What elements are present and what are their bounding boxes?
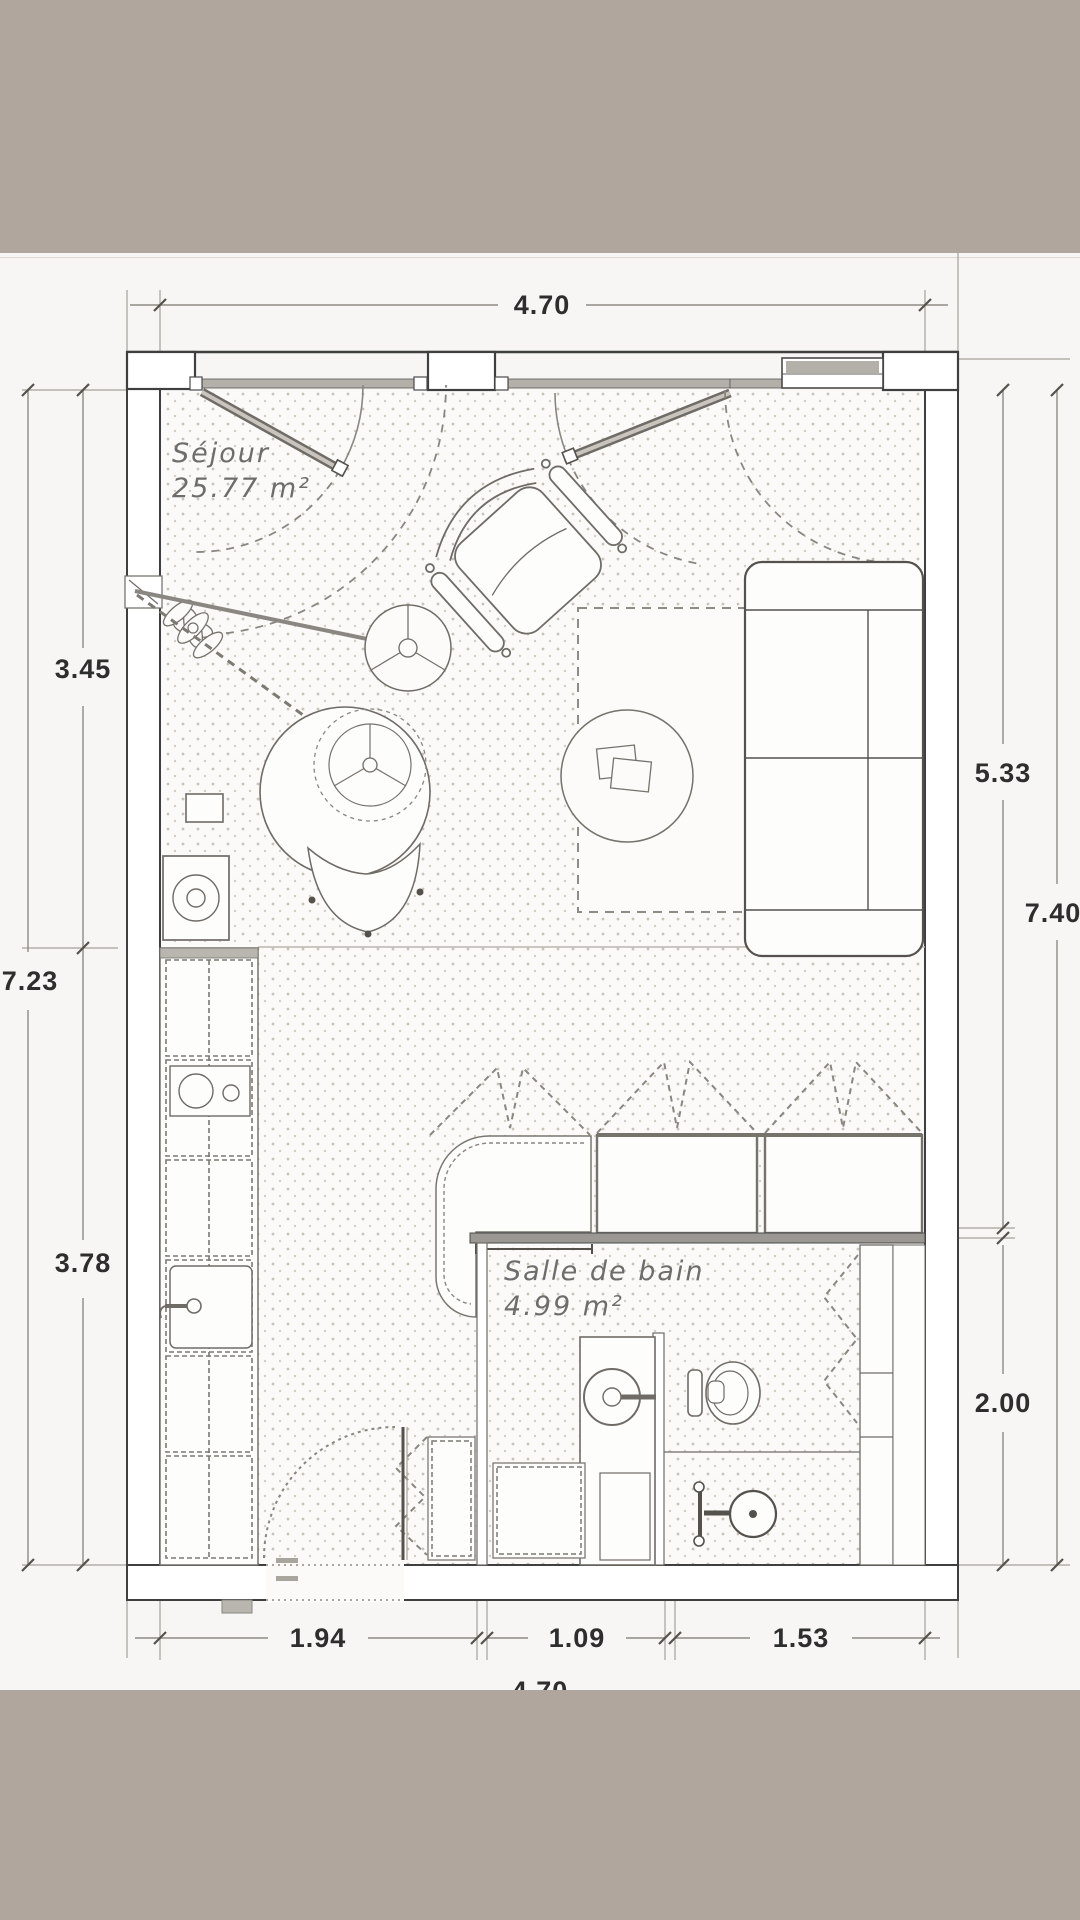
dim-bottom-center: 1.09 bbox=[549, 1623, 606, 1653]
dim-right-total: 7.40 bbox=[1025, 898, 1080, 928]
dim-right-upper: 5.33 bbox=[975, 758, 1032, 788]
room-area-sejour: 25.77 m² bbox=[172, 473, 311, 504]
side-table bbox=[365, 605, 451, 691]
door-mat bbox=[276, 1576, 298, 1581]
floor-plan: Séjour 25.77 m² Salle de bain 4.99 m² 4.… bbox=[0, 0, 1080, 1920]
dim-right-lower: 2.00 bbox=[975, 1388, 1032, 1418]
room-area-salle-de-bain: 4.99 m² bbox=[504, 1291, 624, 1322]
dim-bottom-left: 1.94 bbox=[290, 1623, 347, 1653]
sofa bbox=[745, 562, 923, 956]
dim-bottom-right: 1.53 bbox=[773, 1623, 830, 1653]
bathroom-tall-cabinet bbox=[860, 1245, 925, 1565]
kitchen-counter bbox=[160, 948, 258, 1565]
floor-plan-photo: Séjour 25.77 m² Salle de bain 4.99 m² 4.… bbox=[0, 0, 1080, 1920]
coffee-table bbox=[561, 710, 693, 842]
washing-machine bbox=[163, 856, 229, 940]
window-niche bbox=[782, 358, 883, 388]
dim-left-total: 7.23 bbox=[2, 966, 59, 996]
dim-left-lower: 3.78 bbox=[55, 1248, 112, 1278]
threshold-mat bbox=[222, 1600, 252, 1613]
room-name-sejour: Séjour bbox=[172, 438, 270, 469]
kitchen-sink bbox=[160, 1266, 252, 1348]
photo-bottom-bar bbox=[0, 1690, 1080, 1920]
room-name-salle-de-bain: Salle de bain bbox=[504, 1256, 705, 1287]
door-mat bbox=[276, 1558, 298, 1563]
toilet bbox=[688, 1362, 760, 1424]
cooktop bbox=[170, 1066, 250, 1116]
wall-box bbox=[186, 794, 223, 822]
dim-top-width: 4.70 bbox=[514, 290, 571, 320]
dim-left-upper: 3.45 bbox=[55, 654, 112, 684]
photo-top-bar bbox=[0, 0, 1080, 253]
bathroom-vanity bbox=[580, 1337, 656, 1565]
bathroom-west-wall bbox=[477, 1243, 487, 1565]
